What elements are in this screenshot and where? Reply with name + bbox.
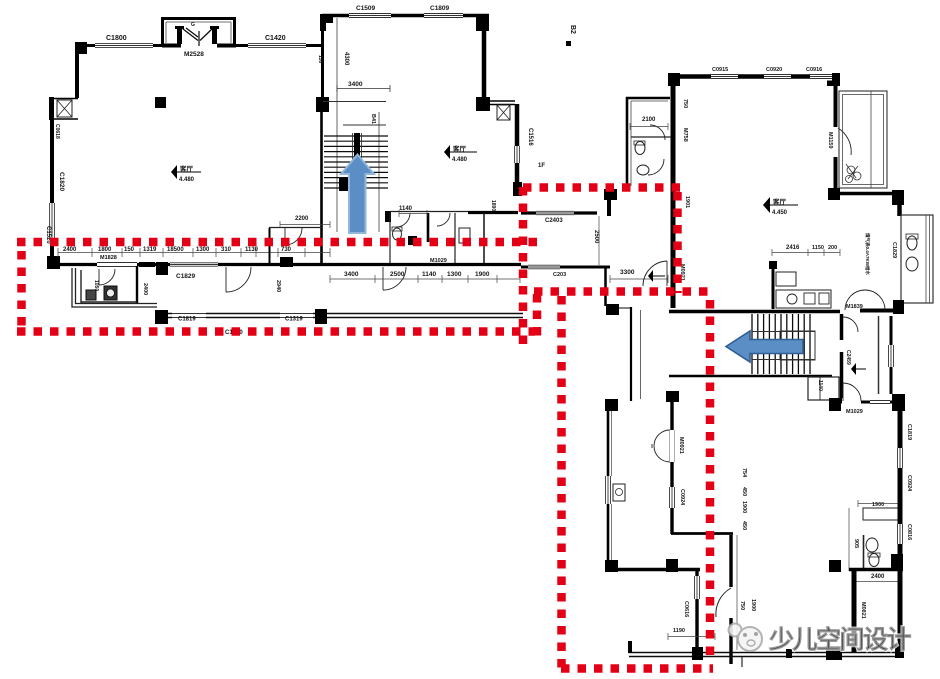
svg-text:2400: 2400 <box>871 574 885 580</box>
svg-text:M1159: M1159 <box>827 132 833 149</box>
svg-text:C1829: C1829 <box>176 273 196 280</box>
svg-text:1319: 1319 <box>143 247 157 253</box>
svg-text:B41: B41 <box>370 114 376 124</box>
svg-text:C0924: C0924 <box>679 489 685 506</box>
svg-text:M0821: M0821 <box>860 602 866 619</box>
svg-text:4300: 4300 <box>343 52 349 66</box>
svg-text:1190: 1190 <box>673 628 685 634</box>
svg-text:2200: 2200 <box>295 216 309 222</box>
svg-text:1300: 1300 <box>447 271 462 278</box>
svg-text:少儿空间设计: 少儿空间设计 <box>768 625 912 654</box>
svg-text:450: 450 <box>741 521 747 530</box>
svg-text:3300: 3300 <box>620 269 635 276</box>
svg-text:煤气表0.4A7KW给水: 煤气表0.4A7KW给水 <box>864 233 871 276</box>
svg-text:754: 754 <box>741 468 747 478</box>
svg-text:4.480: 4.480 <box>452 157 468 163</box>
svg-text:C0618: C0618 <box>54 124 60 139</box>
svg-text:C0916: C0916 <box>806 67 822 73</box>
svg-text:C1819: C1819 <box>906 424 912 440</box>
svg-text:C1819: C1819 <box>178 317 196 323</box>
svg-text:客厅: 客厅 <box>772 197 787 206</box>
svg-text:1900: 1900 <box>750 599 756 611</box>
svg-text:C1800: C1800 <box>106 35 127 42</box>
svg-text:150: 150 <box>124 247 135 253</box>
svg-text:310: 310 <box>221 247 232 253</box>
svg-text:M0921: M0921 <box>678 437 684 454</box>
svg-text:4.450: 4.450 <box>772 210 788 216</box>
svg-text:18500: 18500 <box>167 247 184 253</box>
svg-text:B2: B2 <box>569 25 576 34</box>
svg-text:2400: 2400 <box>142 283 148 295</box>
svg-text:3400: 3400 <box>348 81 363 88</box>
svg-text:C2459: C2459 <box>845 350 851 365</box>
svg-text:C1516: C1516 <box>527 128 533 146</box>
svg-text:2400: 2400 <box>63 247 77 253</box>
svg-text:1300: 1300 <box>196 247 210 253</box>
svg-text:C0920: C0920 <box>766 67 782 73</box>
svg-text:1890: 1890 <box>490 200 496 211</box>
svg-text:2416: 2416 <box>786 245 800 251</box>
svg-text:C0616: C0616 <box>683 601 689 617</box>
svg-text:2940: 2940 <box>275 280 281 292</box>
svg-text:200: 200 <box>828 245 837 251</box>
svg-text:客厅: 客厅 <box>179 164 194 173</box>
svg-text:1900: 1900 <box>475 271 490 278</box>
svg-text:905: 905 <box>853 539 859 548</box>
svg-text:750: 750 <box>739 601 745 610</box>
svg-text:1140: 1140 <box>817 380 823 391</box>
svg-text:C1319: C1319 <box>285 317 303 323</box>
svg-text:C1829: C1829 <box>891 242 897 258</box>
svg-text:1800: 1800 <box>98 247 112 253</box>
svg-text:C1509: C1509 <box>356 5 376 12</box>
svg-text:1900: 1900 <box>741 501 747 513</box>
svg-text:客厅: 客厅 <box>452 144 467 153</box>
svg-text:M1828: M1828 <box>100 255 117 261</box>
svg-text:1130: 1130 <box>245 247 259 253</box>
svg-text:C1809: C1809 <box>430 5 450 12</box>
svg-text:C1820: C1820 <box>58 172 65 192</box>
svg-text:3400: 3400 <box>344 271 359 278</box>
svg-text:G: G <box>191 22 195 28</box>
svg-text:C0816: C0816 <box>906 524 912 540</box>
svg-text:1F: 1F <box>538 163 545 169</box>
svg-text:M1839: M1839 <box>846 304 863 310</box>
svg-text:C2403: C2403 <box>545 218 563 224</box>
svg-text:C203: C203 <box>553 272 566 278</box>
svg-text:730: 730 <box>281 247 292 253</box>
svg-text:M2528: M2528 <box>184 51 204 58</box>
svg-text:450: 450 <box>741 487 747 496</box>
svg-text:1140: 1140 <box>422 271 436 278</box>
svg-text:M1029: M1029 <box>430 258 447 264</box>
svg-text:2100: 2100 <box>642 117 656 123</box>
svg-text:C1420: C1420 <box>265 35 286 42</box>
svg-text:2500: 2500 <box>390 271 405 278</box>
svg-text:C0915: C0915 <box>712 67 728 73</box>
svg-text:1900: 1900 <box>872 502 884 508</box>
svg-text:M758: M758 <box>682 128 688 142</box>
svg-text:C0924: C0924 <box>906 475 912 492</box>
svg-text:2500: 2500 <box>593 230 599 244</box>
svg-text:1050: 1050 <box>93 280 99 291</box>
svg-text:4.480: 4.480 <box>179 177 195 183</box>
svg-text:750: 750 <box>682 99 688 108</box>
svg-text:M1029: M1029 <box>846 409 863 415</box>
svg-text:1901: 1901 <box>684 196 690 208</box>
svg-text:150: 150 <box>317 55 323 64</box>
svg-text:1150: 1150 <box>812 245 824 251</box>
svg-text:1140: 1140 <box>399 206 413 212</box>
